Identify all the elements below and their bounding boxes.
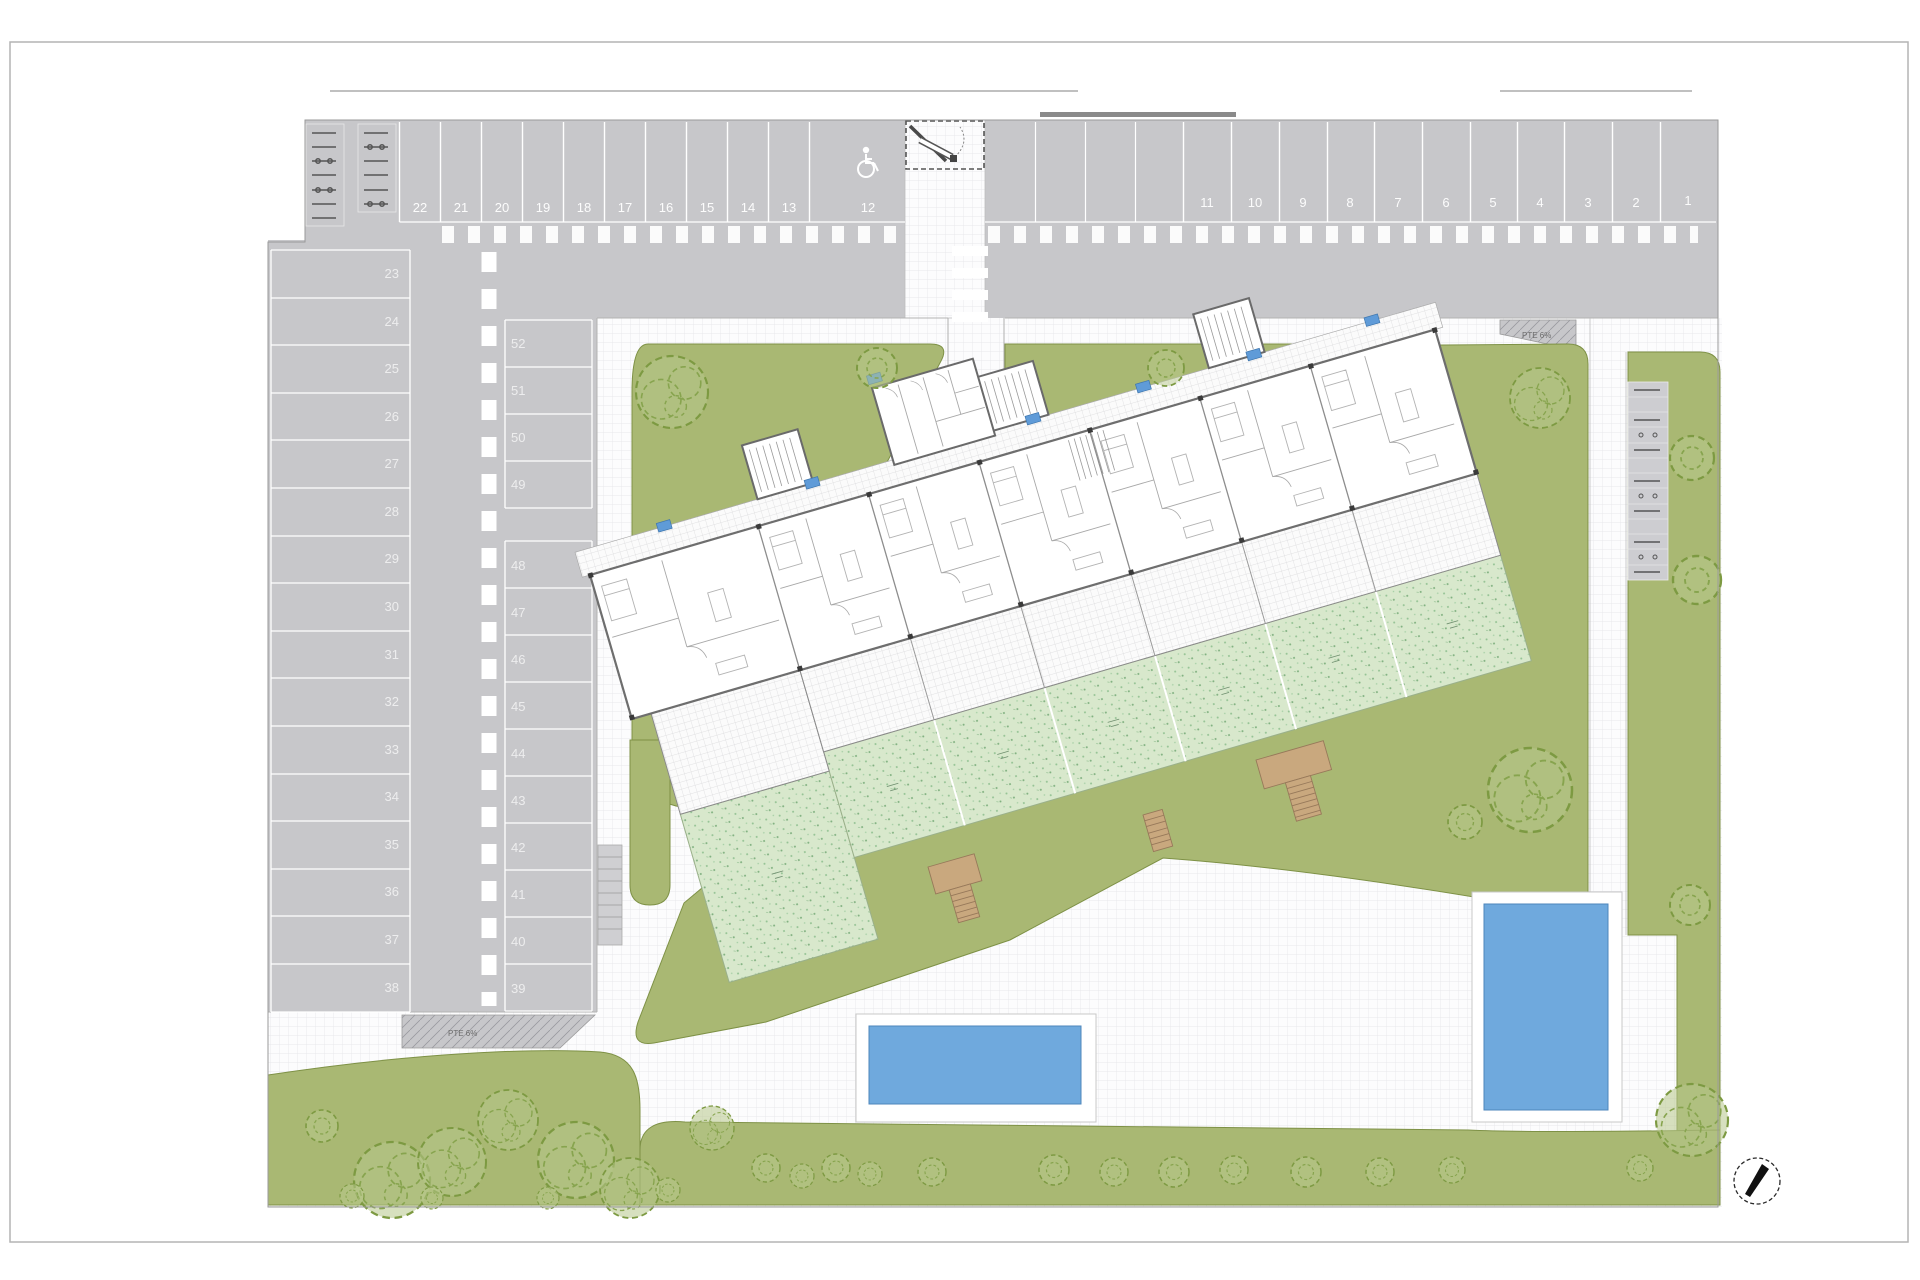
- bush-icon: [1159, 1157, 1189, 1187]
- bush-icon: [822, 1154, 850, 1182]
- stall-number: 27: [385, 456, 399, 471]
- bush-icon: [340, 1184, 364, 1208]
- bush-icon: [1627, 1155, 1653, 1181]
- stall-number: 47: [511, 605, 525, 620]
- stall-number: 6: [1442, 195, 1449, 210]
- bush-icon: [790, 1164, 814, 1188]
- stall-number: 2: [1632, 195, 1639, 210]
- stall-numbers-middle-column: 52 51 50 49 48 47 46 45 44 43 42 41 40 3…: [511, 336, 525, 996]
- tree-icon: [1510, 368, 1570, 428]
- bush-icon: [1448, 805, 1482, 839]
- stall-number: 3: [1584, 195, 1591, 210]
- stall-number: 25: [385, 361, 399, 376]
- wall-segment: [1040, 112, 1236, 117]
- stall-number: 1: [1684, 193, 1691, 208]
- bush-icon: [858, 1162, 882, 1186]
- stall-number: 40: [511, 934, 525, 949]
- bike-rack-icon: [1628, 382, 1668, 580]
- tree-icon: [418, 1128, 486, 1196]
- stall-number: 24: [385, 314, 399, 329]
- ramp-label: PTE 6%: [448, 1029, 477, 1038]
- bush-icon: [1670, 885, 1710, 925]
- lawn-left-strip: [630, 740, 670, 905]
- stall-number: 18: [577, 200, 591, 215]
- stall-number: 35: [385, 837, 399, 852]
- bush-icon: [1673, 556, 1721, 604]
- stall-number: 26: [385, 409, 399, 424]
- stall-number: 15: [700, 200, 714, 215]
- bush-icon: [421, 1187, 443, 1209]
- compass-icon: [1734, 1158, 1780, 1204]
- stall-number: 50: [511, 430, 525, 445]
- site-plan: PTE 6% PTE 6%: [0, 0, 1920, 1280]
- bush-icon: [1291, 1157, 1321, 1187]
- bush-icon: [1148, 350, 1184, 386]
- stall-number: 16: [659, 200, 673, 215]
- tree-icon: [1488, 748, 1572, 832]
- stall-number: 34: [385, 789, 399, 804]
- stall-number: 19: [536, 200, 550, 215]
- stall-number: 48: [511, 558, 525, 573]
- stall-number: 32: [385, 694, 399, 709]
- stall-number: 9: [1299, 195, 1306, 210]
- stall-number: 41: [511, 887, 525, 902]
- stall-number: 23: [385, 266, 399, 281]
- stall-number: 43: [511, 793, 525, 808]
- bush-icon: [656, 1178, 680, 1202]
- stall-number: 39: [511, 981, 525, 996]
- tree-icon: [478, 1090, 538, 1150]
- crosswalk: [435, 226, 1698, 243]
- bush-icon: [752, 1154, 780, 1182]
- stall-number: 38: [385, 980, 399, 995]
- bush-icon: [537, 1187, 559, 1209]
- stall-number: 30: [385, 599, 399, 614]
- second-pool: [1472, 892, 1622, 1122]
- bush-icon: [1100, 1158, 1128, 1186]
- stall-number: 4: [1536, 195, 1543, 210]
- tree-icon: [600, 1158, 660, 1218]
- stall-number: 7: [1394, 195, 1401, 210]
- bush-icon: [857, 348, 897, 388]
- stall-number: 14: [741, 200, 755, 215]
- side-ramp: [598, 845, 622, 945]
- stall-number: 44: [511, 746, 525, 761]
- tree-icon: [1656, 1084, 1728, 1156]
- tree-icon: [690, 1106, 734, 1150]
- stall-number: 29: [385, 551, 399, 566]
- pool-water: [869, 1026, 1081, 1104]
- bush-icon: [1366, 1158, 1394, 1186]
- ramp-label: PTE 6%: [1522, 331, 1551, 340]
- main-pool: [856, 1014, 1096, 1122]
- bush-icon: [306, 1110, 338, 1142]
- stall-number: 33: [385, 742, 399, 757]
- bush-icon: [1670, 436, 1714, 480]
- stall-number: 49: [511, 477, 525, 492]
- stall-number-handicap: 12: [861, 200, 875, 215]
- bush-icon: [1439, 1157, 1465, 1183]
- stall-number: 5: [1489, 195, 1496, 210]
- stall-number: 10: [1248, 195, 1262, 210]
- tree-icon: [636, 356, 708, 428]
- stall-number: 45: [511, 699, 525, 714]
- stall-number: 51: [511, 383, 525, 398]
- bush-icon: [1220, 1156, 1248, 1184]
- stall-number: 36: [385, 884, 399, 899]
- stall-number: 37: [385, 932, 399, 947]
- site-plan-page: PTE 6% PTE 6%: [0, 0, 1920, 1280]
- stall-number: 21: [454, 200, 468, 215]
- stall-number: 42: [511, 840, 525, 855]
- bush-icon: [1039, 1155, 1069, 1185]
- stall-number: 28: [385, 504, 399, 519]
- pool-water: [1484, 904, 1608, 1110]
- stall-number: 13: [782, 200, 796, 215]
- stall-number: 31: [385, 647, 399, 662]
- stall-number: 46: [511, 652, 525, 667]
- stall-number: 52: [511, 336, 525, 351]
- stall-number: 11: [1200, 195, 1214, 210]
- stall-number: 22: [413, 200, 427, 215]
- bush-icon: [918, 1158, 946, 1186]
- stall-number: 17: [618, 200, 632, 215]
- stall-number: 8: [1346, 195, 1353, 210]
- stall-number: 20: [495, 200, 509, 215]
